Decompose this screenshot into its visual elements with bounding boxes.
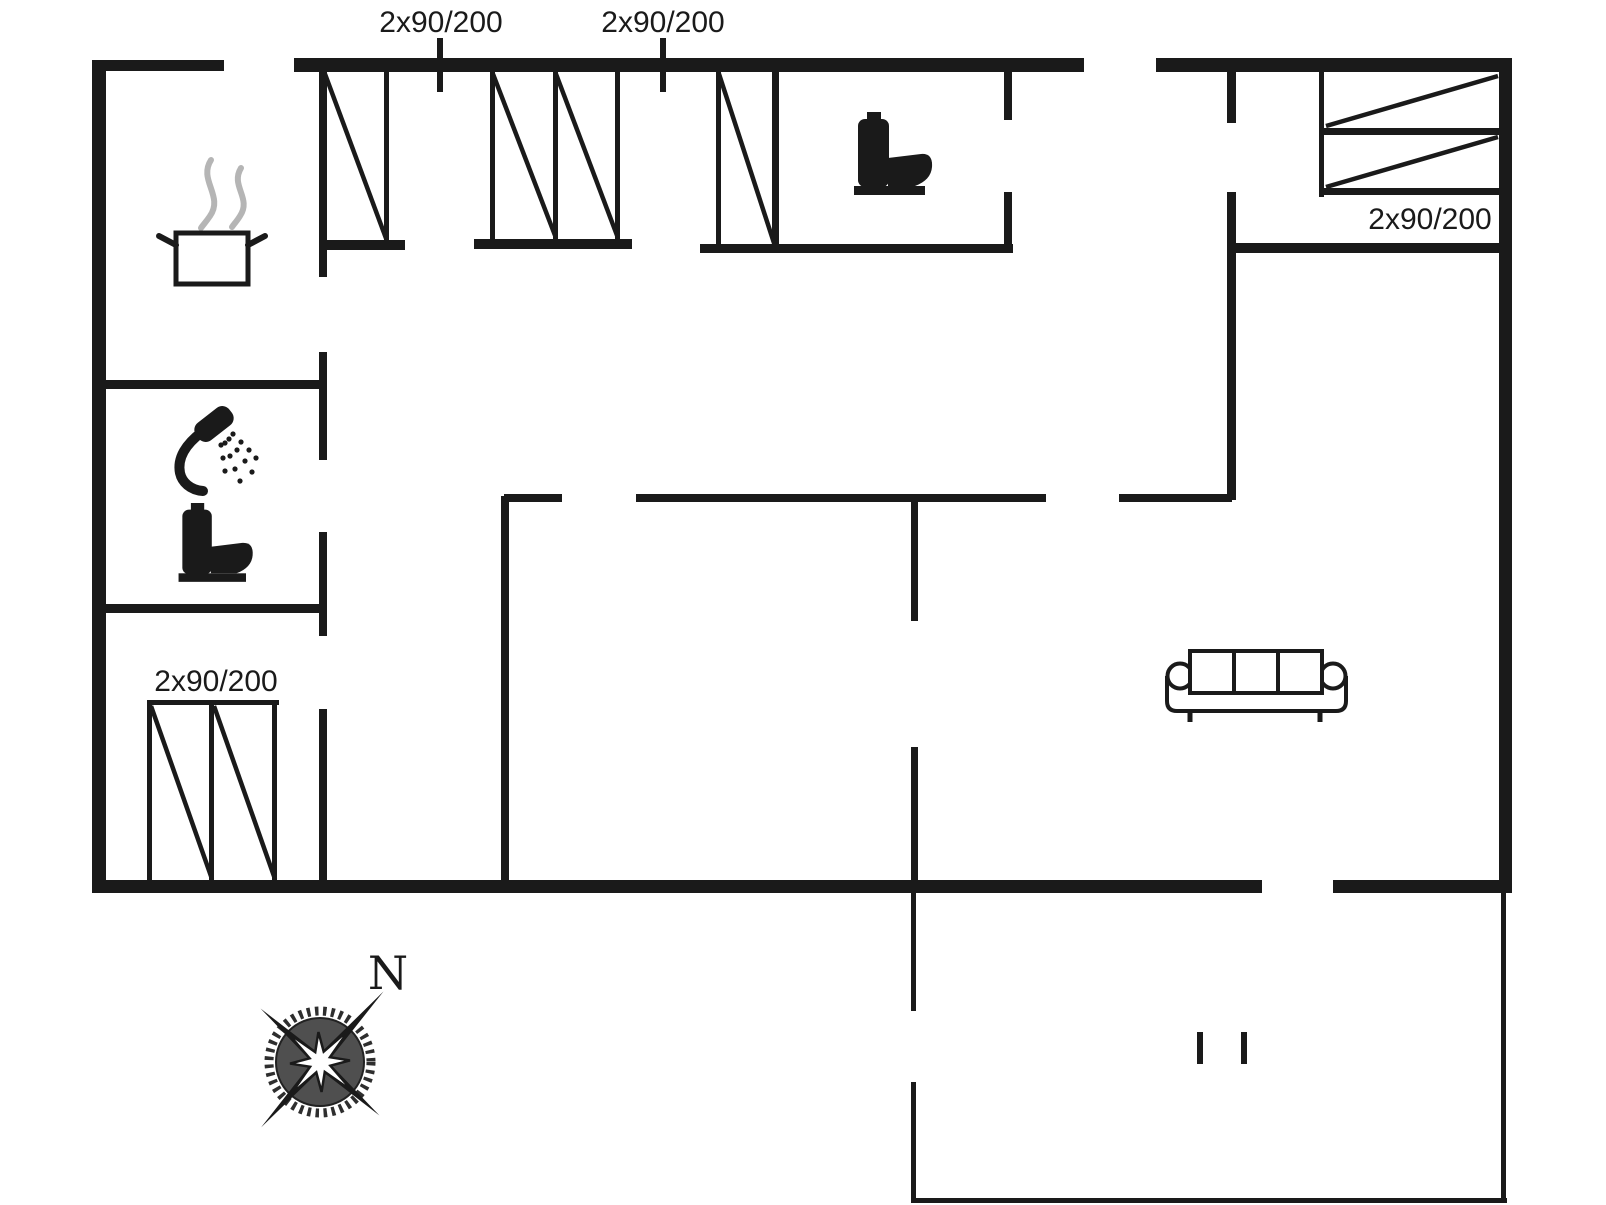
terrace-mark-right: [1241, 1032, 1247, 1064]
terrace-outline: [911, 891, 1507, 1203]
bed-size-label-top-center: 2x90/200: [601, 6, 724, 39]
bed-top-left: [322, 72, 405, 250]
bed-size-label-bottom-left: 2x90/200: [154, 665, 277, 698]
floor-plan: N 2x90/200 2x90/200 2x90/200 2x90/200: [0, 0, 1606, 1205]
steam-icon: [232, 168, 244, 227]
bed-size-label-top-left: 2x90/200: [379, 6, 502, 39]
interior-walls: [95, 72, 1512, 893]
outer-walls: [92, 58, 1512, 893]
bed-top-single: [716, 72, 774, 246]
floor-plan-canvas: N 2x90/200 2x90/200 2x90/200 2x90/200: [0, 0, 1606, 1205]
bed-bottom-left: [147, 700, 279, 883]
compass-rose-icon: N: [202, 938, 443, 1181]
terrace-mark-left: [1197, 1032, 1203, 1064]
steam-icon: [201, 160, 214, 228]
cooking-pot-icon: [159, 160, 265, 284]
water-spray-icon: [218, 431, 258, 483]
toilet-icon-wc: [854, 112, 932, 195]
sofa-icon: [1167, 651, 1346, 722]
bed-top-center: [474, 72, 632, 249]
bed-size-label-right: 2x90/200: [1368, 203, 1491, 236]
north-label: N: [368, 946, 408, 1000]
bed-right-double: [1319, 70, 1502, 197]
shower-icon: [179, 402, 258, 491]
toilet-icon-bathroom: [179, 503, 253, 582]
